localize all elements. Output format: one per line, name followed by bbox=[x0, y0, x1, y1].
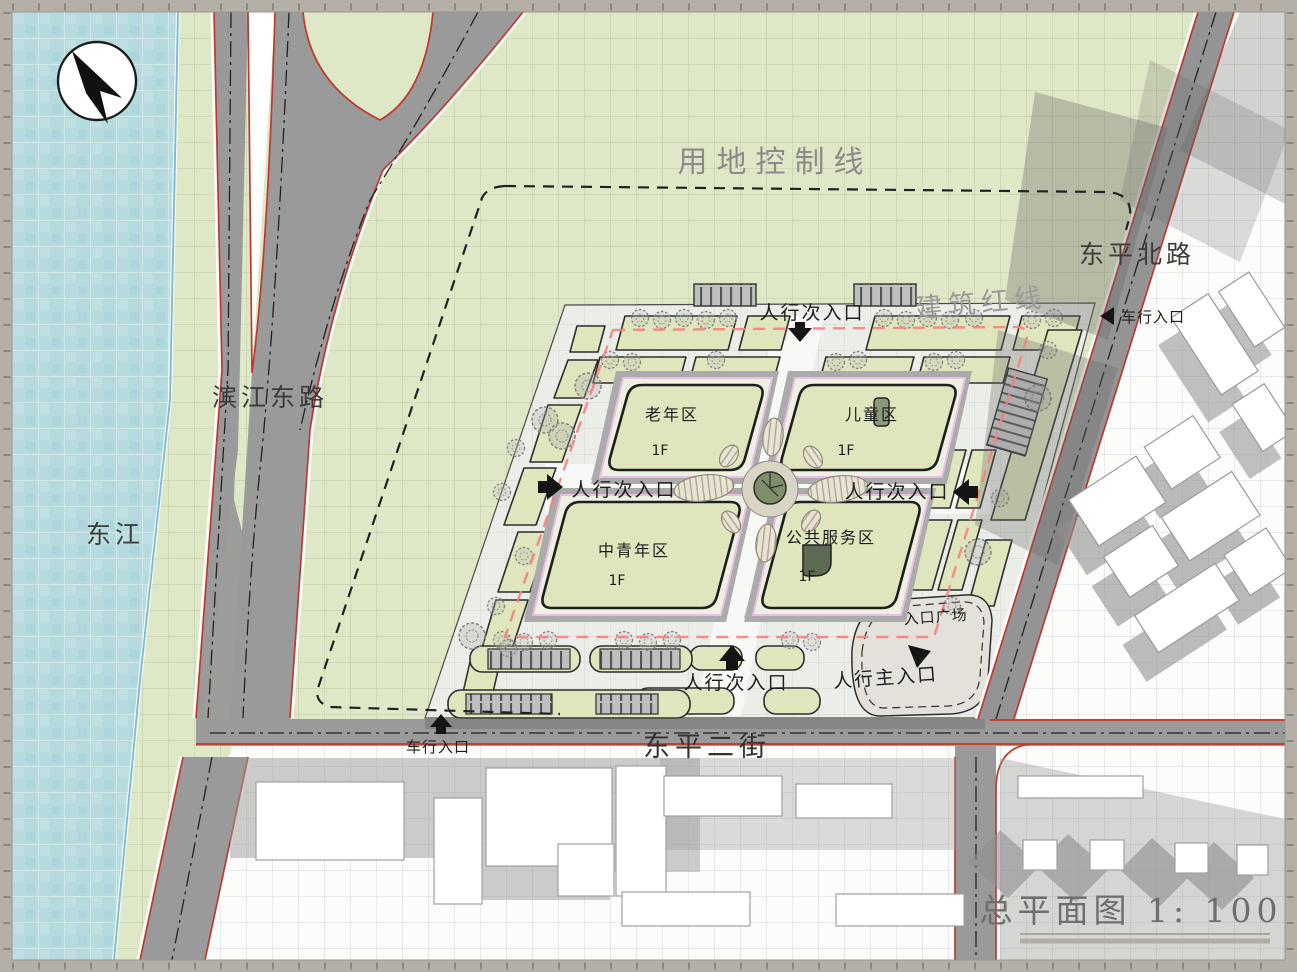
building-public-service-zone bbox=[762, 502, 919, 608]
label-ped-secondary-left: 人行次入口 bbox=[571, 479, 676, 501]
label-ped-secondary-top: 人行次入口 bbox=[759, 302, 864, 324]
label-ped-secondary-right: 人行次入口 bbox=[844, 481, 949, 503]
label-vehicle-entrance-right: 车行入口 bbox=[1121, 308, 1185, 326]
label-river-dongjiang: 东江 bbox=[86, 520, 144, 549]
label-zone-youth-floor: 1F bbox=[609, 573, 626, 589]
building-elderly-zone bbox=[609, 385, 762, 470]
site-plan-sheet: 用地控制线 建筑红线 东平北路 滨江东路 东江 东平二街 人行次入口 人行次入口… bbox=[0, 0, 1297, 972]
label-road-binjiang-east: 滨江东路 bbox=[212, 383, 328, 412]
label-zone-children: 儿童区 bbox=[845, 405, 899, 424]
label-zone-children-floor: 1F bbox=[838, 443, 855, 459]
label-vehicle-entrance-bottom: 车行入口 bbox=[406, 738, 470, 756]
label-street-dongping-2nd: 东平二街 bbox=[643, 732, 771, 763]
label-road-dongping-north: 东平北路 bbox=[1079, 240, 1195, 269]
label-zone-elderly: 老年区 bbox=[645, 405, 699, 424]
label-zone-public-service-floor: 1F bbox=[799, 569, 816, 585]
label-zone-public-service: 公共服务区 bbox=[786, 528, 876, 547]
title-block: 总平面图 1: 1000 bbox=[979, 891, 1297, 941]
label-land-use-control-line: 用地控制线 bbox=[678, 145, 873, 180]
label-zone-youth: 中青年区 bbox=[598, 541, 670, 560]
label-zone-elderly-floor: 1F bbox=[652, 443, 669, 459]
site-plan-drawing: 用地控制线 建筑红线 东平北路 滨江东路 东江 东平二街 人行次入口 人行次入口… bbox=[0, 0, 1297, 972]
label-ped-secondary-bottom: 人行次入口 bbox=[683, 672, 788, 694]
drawing-title: 总平面图 1: 1000 bbox=[979, 891, 1297, 930]
